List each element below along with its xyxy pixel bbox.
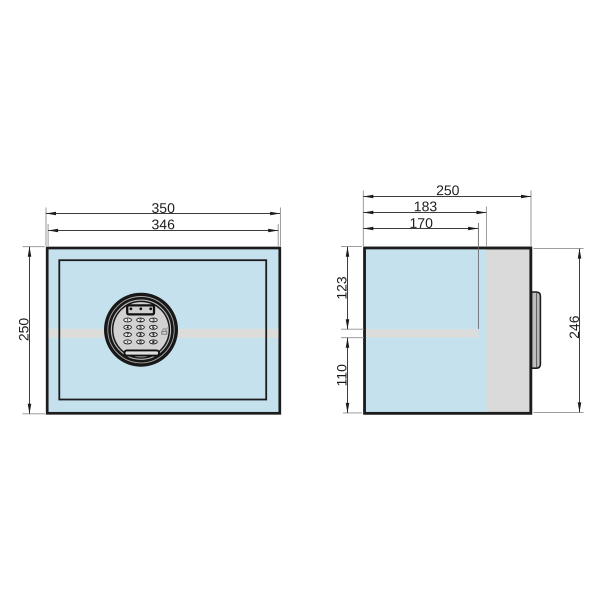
svg-text:183: 183 [414,198,438,214]
svg-text:246: 246 [566,315,582,339]
svg-text:250: 250 [436,182,460,198]
svg-text:350: 350 [152,200,176,216]
svg-text:170: 170 [410,215,434,231]
svg-text:250: 250 [16,318,32,342]
svg-text:123: 123 [333,276,349,300]
svg-text:346: 346 [152,216,176,232]
svg-text:110: 110 [333,364,349,387]
